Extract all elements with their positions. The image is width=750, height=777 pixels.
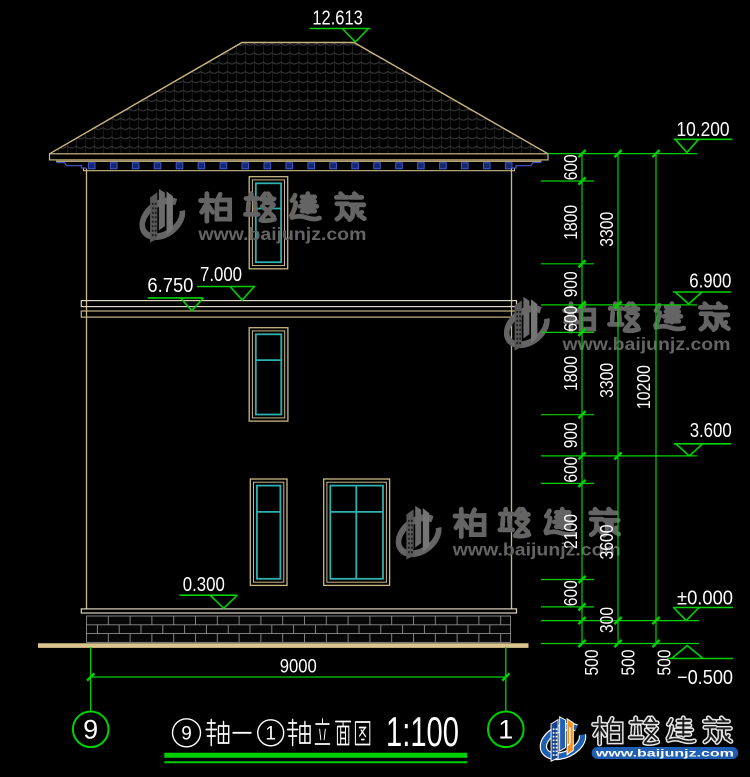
- svg-text:9000: 9000: [280, 657, 317, 678]
- svg-text:3300: 3300: [597, 212, 617, 247]
- svg-text:500: 500: [582, 650, 602, 676]
- svg-text:10.200: 10.200: [677, 119, 730, 141]
- svg-text:12.613: 12.613: [312, 8, 363, 30]
- svg-text:2100: 2100: [561, 514, 581, 549]
- svg-text:600: 600: [561, 580, 581, 606]
- svg-text:1800: 1800: [561, 356, 581, 391]
- svg-text:1800: 1800: [561, 205, 581, 240]
- svg-text:±0.000: ±0.000: [677, 588, 733, 610]
- svg-text:10200: 10200: [634, 365, 654, 409]
- svg-text:www.baijunjz.com: www.baijunjz.com: [594, 748, 734, 760]
- svg-text:1: 1: [265, 724, 276, 745]
- svg-text:9: 9: [83, 715, 98, 745]
- svg-text:1:100: 1:100: [386, 708, 459, 755]
- svg-text:9: 9: [181, 724, 192, 745]
- svg-text:3300: 3300: [597, 363, 617, 398]
- svg-text:500: 500: [619, 650, 639, 676]
- svg-text:−0.500: −0.500: [677, 667, 733, 689]
- svg-text:600: 600: [561, 154, 581, 180]
- svg-text:3600: 3600: [597, 525, 617, 560]
- svg-text:7.000: 7.000: [200, 264, 242, 286]
- svg-text:900: 900: [561, 422, 581, 448]
- svg-text:0.300: 0.300: [183, 574, 225, 596]
- svg-text:500: 500: [655, 650, 675, 676]
- svg-text:www.baijunjz.com: www.baijunjz.com: [561, 334, 730, 354]
- svg-text:1: 1: [498, 715, 513, 745]
- svg-text:www.baijunjz.com: www.baijunjz.com: [197, 224, 366, 244]
- svg-text:3.600: 3.600: [690, 420, 732, 442]
- svg-text:6.750: 6.750: [147, 275, 193, 297]
- svg-text:900: 900: [561, 271, 581, 297]
- svg-text:www.baijunjz.com: www.baijunjz.com: [452, 540, 621, 560]
- svg-text:300: 300: [597, 607, 617, 633]
- svg-text:600: 600: [561, 306, 581, 332]
- svg-text:600: 600: [561, 457, 581, 483]
- svg-text:6.900: 6.900: [689, 271, 731, 293]
